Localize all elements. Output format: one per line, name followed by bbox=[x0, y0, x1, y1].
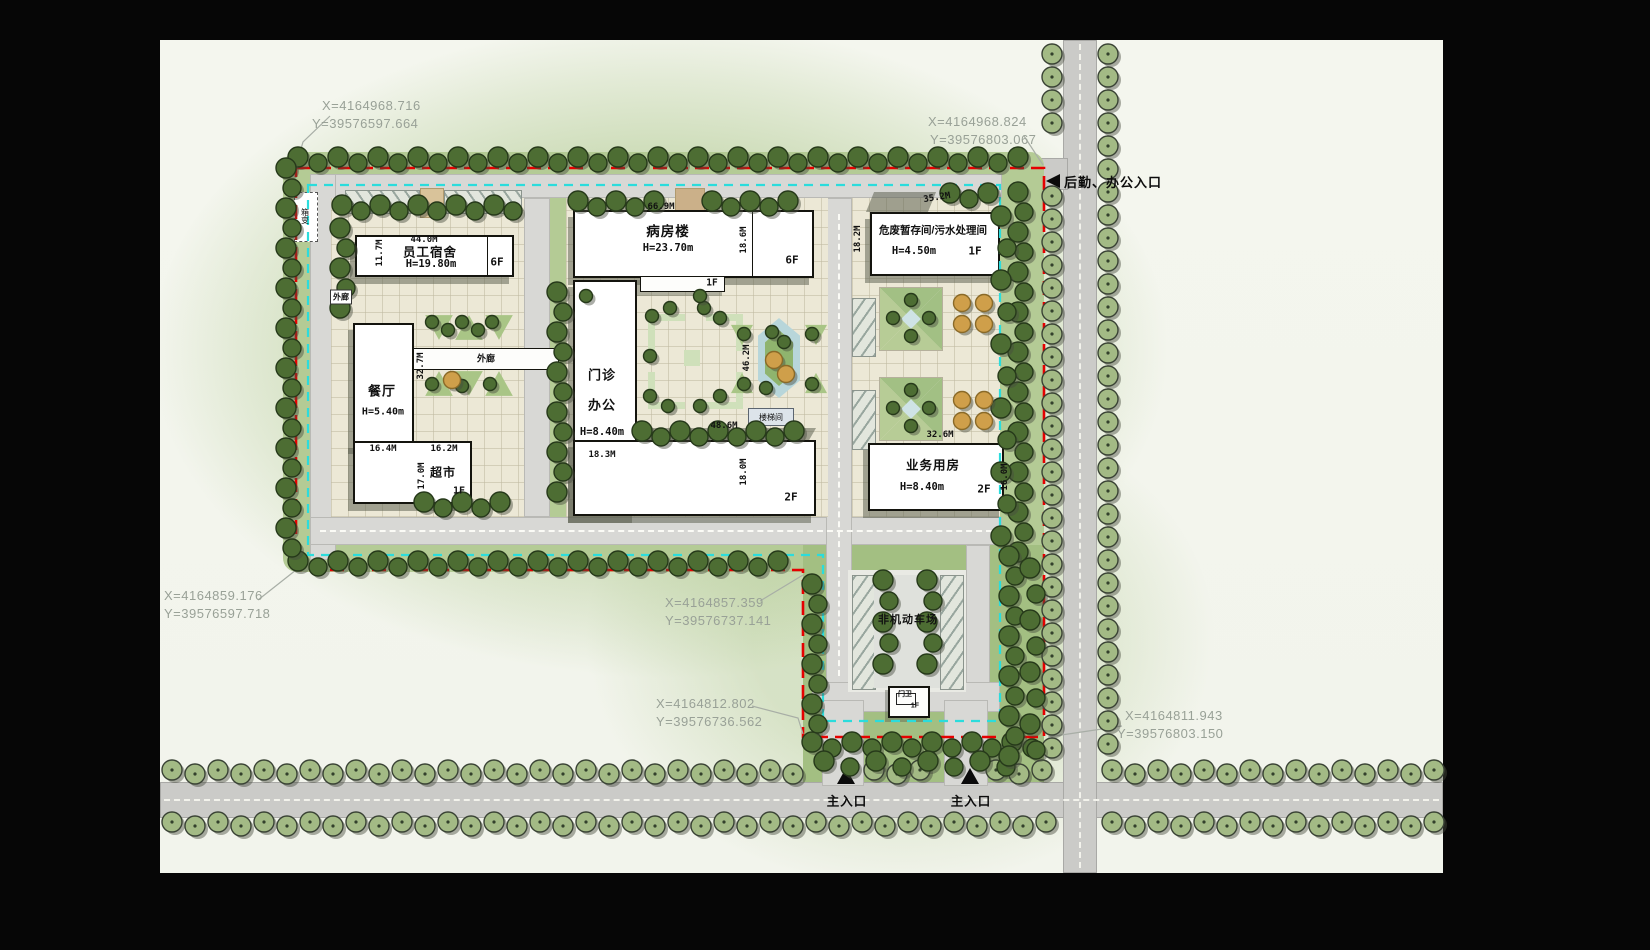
dim-label: 18.3M bbox=[588, 450, 615, 460]
building-floors: 6F bbox=[490, 256, 503, 269]
extension-road-east bbox=[966, 545, 990, 690]
building-floors: 2F bbox=[784, 491, 797, 504]
building-floors: 1F bbox=[968, 245, 981, 258]
coordinate-label: X=4164812.802 bbox=[656, 696, 755, 711]
dim-label: 32.6M bbox=[926, 430, 953, 440]
campus-centerline bbox=[320, 530, 992, 532]
parking-label: 非机动车场 bbox=[878, 611, 938, 627]
coordinate-label: X=4164859.176 bbox=[164, 588, 263, 603]
dim-label: 16.0M bbox=[1000, 463, 1010, 490]
coordinate-label: Y=39576597.718 bbox=[164, 606, 270, 621]
coordinate-label: X=4164968.716 bbox=[322, 98, 421, 113]
coordinate-label: Y=39576736.562 bbox=[656, 714, 762, 729]
parking-stalls bbox=[852, 298, 876, 357]
site-plan-drawing: 楼梯间 X=4164968.716 Y=39576597.664 X=41649… bbox=[0, 0, 1650, 950]
parking-stalls bbox=[940, 575, 964, 690]
main-entrance-label: 主入口 bbox=[827, 791, 868, 810]
building-height: H=23.70m bbox=[643, 242, 694, 254]
surface-parking-hatch bbox=[444, 190, 522, 214]
dim-label: 18.6M bbox=[739, 226, 749, 253]
canopy-floors: 1F bbox=[706, 278, 717, 289]
building-name: 餐厅 bbox=[368, 381, 396, 400]
planter-square bbox=[684, 350, 700, 366]
corridor-label: 外廊 bbox=[477, 352, 495, 365]
building-name: 办公 bbox=[588, 395, 616, 414]
building-floors: 6F bbox=[785, 254, 798, 267]
parking-stalls bbox=[852, 575, 876, 690]
building-height: H=5.40m bbox=[362, 407, 404, 418]
planter-x bbox=[880, 288, 942, 350]
transformer-label: 箱变 bbox=[300, 208, 311, 224]
stairwell-label: 楼梯间 bbox=[759, 412, 783, 423]
coordinate-label: Y=39576737.141 bbox=[665, 613, 771, 628]
building-floors: 2F bbox=[977, 483, 990, 496]
gatehouse-floors: 1F bbox=[911, 703, 919, 710]
campus-centerline bbox=[838, 214, 840, 676]
main-entrance-stub-left bbox=[822, 700, 864, 786]
entry-pad bbox=[420, 188, 444, 218]
parking-stalls bbox=[852, 390, 876, 450]
planter-L bbox=[648, 372, 685, 409]
coordinate-label: Y=39576803.150 bbox=[1117, 726, 1223, 741]
dim-label: 66.9M bbox=[647, 202, 674, 212]
dim-label: 46.2M bbox=[742, 344, 752, 371]
entry-pad bbox=[675, 188, 705, 212]
dim-label: 11.7M bbox=[375, 239, 385, 266]
surface-parking-hatch bbox=[345, 190, 420, 214]
coordinate-label: Y=39576597.664 bbox=[312, 116, 418, 131]
building-height: H=8.40m bbox=[900, 481, 944, 493]
building-floors: 1F bbox=[453, 486, 465, 497]
dim-label: 48.6M bbox=[710, 421, 737, 431]
building-height: H=19.80m bbox=[406, 258, 457, 270]
coordinate-label: X=4164857.359 bbox=[665, 595, 764, 610]
dim-label: 16.2M bbox=[430, 444, 457, 454]
coordinate-label: X=4164811.943 bbox=[1125, 708, 1223, 723]
road-centerline bbox=[1079, 44, 1081, 868]
dim-label: 17.0M bbox=[417, 462, 427, 489]
parking-aisle bbox=[874, 575, 940, 688]
corridor-label: 外廊 bbox=[330, 290, 352, 305]
building-name: 门诊 bbox=[588, 365, 616, 384]
gatehouse-label: 门卫 bbox=[898, 689, 912, 699]
planter-L bbox=[648, 314, 685, 351]
dim-label: 16.4M bbox=[369, 444, 396, 454]
stairwell-chip: 楼梯间 bbox=[748, 408, 794, 426]
building-ward bbox=[573, 210, 814, 278]
building-height: H=8.40m bbox=[580, 426, 624, 438]
coordinate-label: X=4164968.824 bbox=[928, 114, 1027, 129]
main-entrance-label: 主入口 bbox=[951, 791, 992, 810]
dim-label: 32.7M bbox=[416, 352, 426, 379]
dim-label: 18.0M bbox=[739, 458, 749, 485]
building-name: 危废暂存间/污水处理间 bbox=[879, 223, 987, 238]
building-height: H=4.50m bbox=[892, 245, 936, 257]
main-entrance-stub-right bbox=[944, 700, 988, 786]
dim-label: 18.2M bbox=[853, 225, 863, 252]
coordinate-label: Y=39576803.067 bbox=[930, 132, 1036, 147]
building-name: 业务用房 bbox=[906, 455, 960, 474]
building-business bbox=[868, 443, 1004, 511]
building-name: 超市 bbox=[430, 464, 456, 481]
rear-entrance-label: 后勤、办公入口 bbox=[1064, 172, 1162, 191]
road-centerline bbox=[164, 799, 1439, 801]
building-name: 病房楼 bbox=[646, 220, 690, 240]
